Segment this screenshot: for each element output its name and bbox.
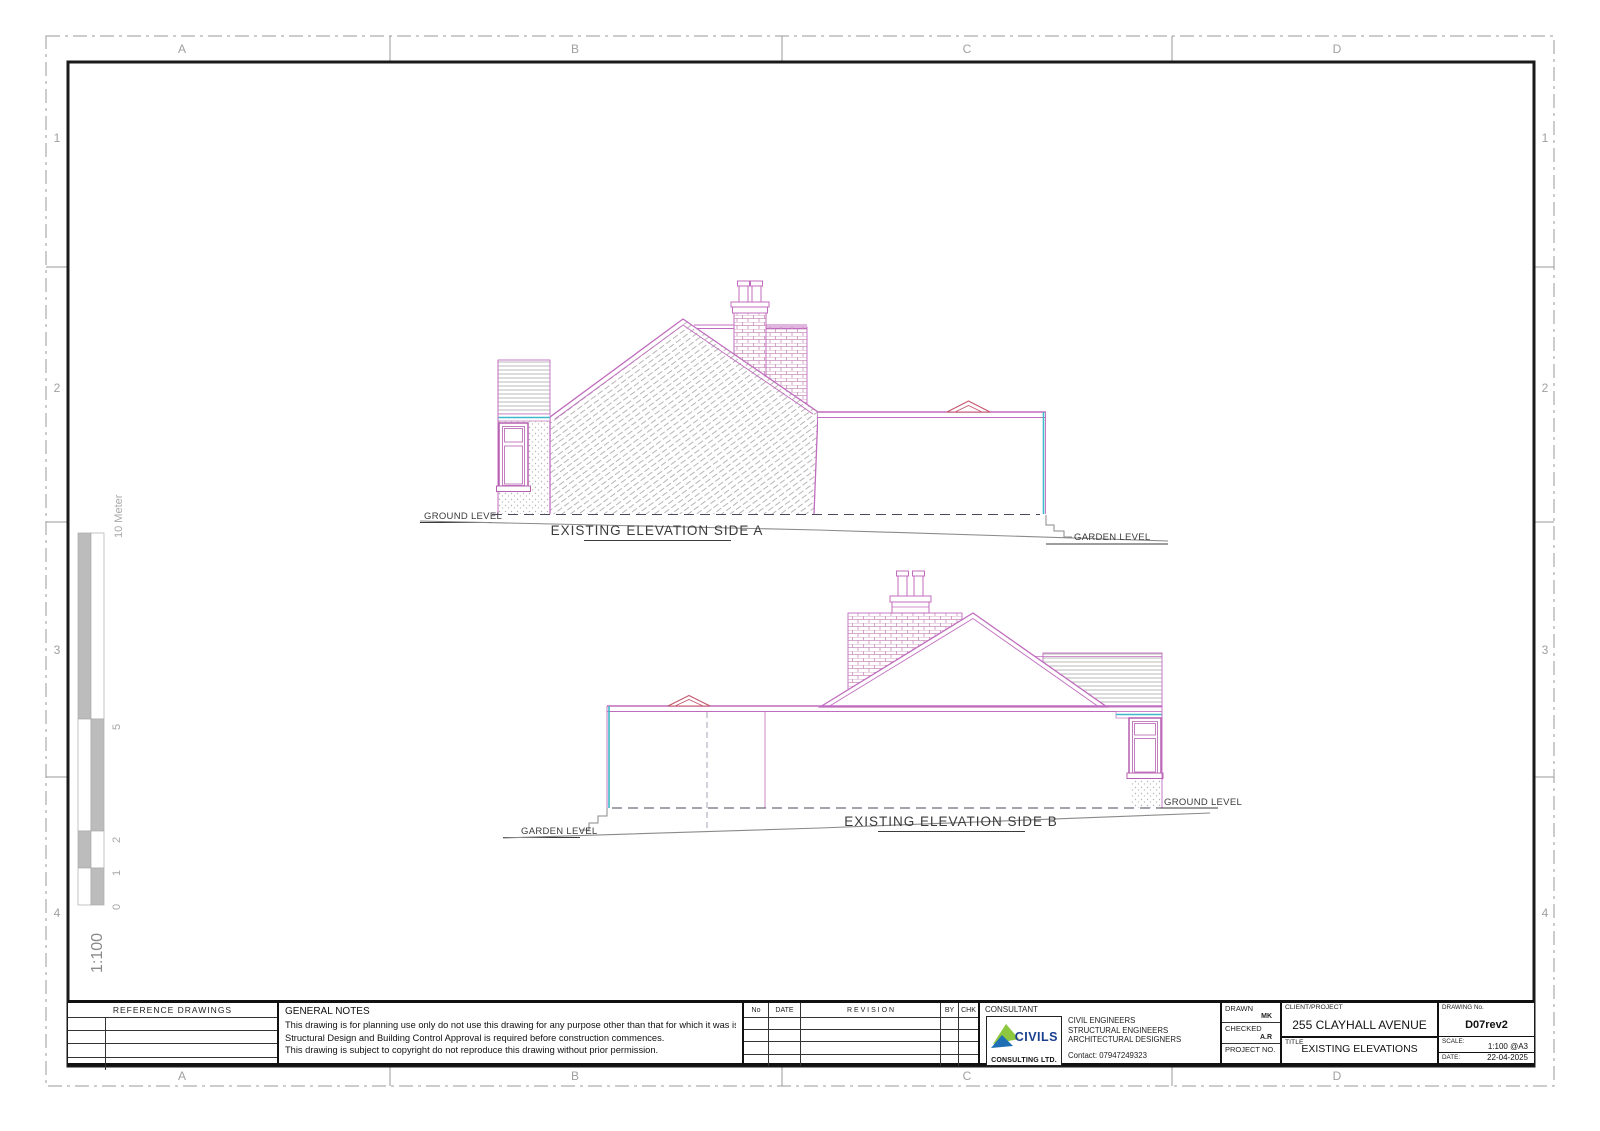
garden-wall-a	[818, 401, 1046, 514]
date-value: 22-04-2025	[1487, 1053, 1528, 1062]
general-notes-section: GENERAL NOTES This drawing is for planni…	[277, 1003, 742, 1063]
revision-col-date: DATE	[768, 1003, 800, 1017]
reference-drawings-row	[68, 1030, 277, 1043]
drawn-label: DRAWN	[1225, 1004, 1253, 1013]
scale-cell: SCALE: 1:100 @A3	[1439, 1036, 1534, 1052]
grid-col-label-top: B	[571, 42, 579, 56]
general-notes-line: This drawing is subject to copyright do …	[285, 1044, 736, 1057]
scale-bar-ratio: 1:100	[89, 933, 106, 973]
date-label: DATE:	[1442, 1054, 1460, 1061]
drawn-value: MK	[1261, 1013, 1272, 1020]
grid-row-label-right: 1	[1542, 131, 1549, 145]
grid-col-label-top: D	[1333, 42, 1342, 56]
scale-label: SCALE:	[1442, 1038, 1464, 1045]
scale-bar-tick: 2	[111, 837, 123, 843]
scale-value: 1:100 @A3	[1488, 1042, 1528, 1051]
grid-col-label-bottom: C	[963, 1069, 972, 1083]
side-wing-a	[497, 360, 551, 514]
drawing-no-label: DRAWING No.	[1442, 1004, 1484, 1011]
general-notes-header: GENERAL NOTES	[285, 1006, 736, 1017]
grid-col-label-bottom: B	[571, 1069, 579, 1083]
drawing-no-cell: DRAWING No. D07rev2	[1439, 1003, 1534, 1036]
reference-drawings-header: REFERENCE DRAWINGS	[68, 1003, 277, 1017]
wall-ornament-a	[947, 401, 990, 412]
scale-bar-tick: 1	[111, 870, 123, 876]
general-notes-line: Structural Design and Building Control A…	[285, 1032, 736, 1045]
grid-row-label-left: 4	[54, 906, 61, 920]
grid-row-label-right: 4	[1542, 906, 1549, 920]
drawing-no-value: D07rev2	[1439, 1019, 1534, 1031]
reference-drawings-row	[68, 1057, 277, 1070]
consultant-service: STRUCTURAL ENGINEERS	[1068, 1026, 1181, 1036]
inner-frame	[68, 62, 1534, 1066]
client-project-cell: CLIENT/PROJECT 255 CLAYHALL AVENUE	[1282, 1003, 1437, 1036]
scale-bar: 10 Meter 5 2 1 0 1:100	[78, 494, 125, 973]
consultant-contact: Contact: 07947249323	[1068, 1051, 1147, 1060]
scale-bar-tick: 5	[111, 724, 123, 730]
wall-ornament-b	[668, 696, 710, 707]
caption-side-b: EXISTING ELEVATION SIDE B	[844, 814, 1058, 829]
grid-row-label-left: 3	[54, 643, 61, 657]
consultant-services: CIVIL ENGINEERS STRUCTURAL ENGINEERS ARC…	[1068, 1016, 1181, 1045]
consultant-service: CIVIL ENGINEERS	[1068, 1016, 1181, 1026]
sheet-border: A B C D A B C D 1 2 3 4 1 2 3 4	[46, 36, 1554, 1086]
render-b	[1130, 779, 1161, 808]
elevation-side-b: GARDEN LEVEL GROUND LEVEL EXISTING ELEVA…	[503, 571, 1242, 838]
checked-row: CHECKED A.R	[1222, 1022, 1280, 1042]
consultant-service: ARCHITECTURAL DESIGNERS	[1068, 1035, 1181, 1045]
grid-col-label-bottom: A	[178, 1069, 186, 1083]
grid-row-label-left: 1	[54, 131, 61, 145]
client-project-label: CLIENT/PROJECT	[1285, 1004, 1343, 1011]
revision-table: No DATE R E V I S I O N BY CHK	[742, 1003, 978, 1063]
ground-level-label-a: GROUND LEVEL	[424, 511, 502, 522]
revision-col-chk: CHK	[958, 1003, 978, 1017]
title-cell: TITLE EXISTING ELEVATIONS	[1282, 1036, 1437, 1063]
elevation-side-a: GROUND LEVEL GARDEN LEVEL EXISTING ELEVA…	[420, 281, 1168, 544]
consultant-logo-subtext: CONSULTING LTD.	[987, 1057, 1061, 1064]
title-value: EXISTING ELEVATIONS	[1282, 1043, 1437, 1055]
grid-col-label-top: C	[963, 42, 972, 56]
drawing-info-section: DRAWING No. D07rev2 SCALE: 1:100 @A3 DAT…	[1437, 1003, 1534, 1063]
client-project-value: 255 CLAYHALL AVENUE	[1282, 1018, 1437, 1032]
consultant-section: CONSULTANT CIVILS CONSULTING LTD. CIVIL …	[978, 1003, 1220, 1063]
drawn-checked-section: DRAWN MK CHECKED A.R PROJECT NO.	[1220, 1003, 1280, 1063]
grid-col-label-bottom: D	[1333, 1069, 1342, 1083]
siding-a	[498, 360, 550, 414]
general-notes-line: This drawing is for planning use only do…	[285, 1019, 736, 1032]
garden-level-label-a: GARDEN LEVEL	[1074, 532, 1150, 543]
consultant-logo-text: CIVILS	[1015, 1030, 1058, 1044]
grid-row-label-left: 2	[54, 381, 61, 395]
revision-col-revision: R E V I S I O N	[800, 1003, 940, 1017]
project-no-label: PROJECT NO.	[1225, 1045, 1275, 1054]
checked-value: A.R	[1260, 1034, 1272, 1041]
title-block: REFERENCE DRAWINGS GENERAL NOTES This dr…	[68, 1000, 1534, 1066]
outer-border	[46, 36, 1554, 1086]
grid-col-label-top: A	[178, 42, 186, 56]
checked-label: CHECKED	[1225, 1024, 1262, 1033]
consultant-logo: CIVILS CONSULTING LTD.	[986, 1016, 1062, 1066]
ground-level-label-b: GROUND LEVEL	[1164, 797, 1242, 808]
levels-a: GROUND LEVEL GARDEN LEVEL	[420, 511, 1168, 544]
caption-side-a: EXISTING ELEVATION SIDE A	[551, 523, 764, 538]
grid-ticks	[46, 36, 1554, 1086]
drawn-row: DRAWN MK	[1222, 1003, 1280, 1022]
reference-drawings-row	[68, 1043, 277, 1056]
client-title-section: CLIENT/PROJECT 255 CLAYHALL AVENUE TITLE…	[1280, 1003, 1437, 1063]
front-wall-b	[607, 706, 1162, 808]
chimney-b	[890, 571, 931, 613]
grid-row-label-right: 2	[1542, 381, 1549, 395]
scale-bar-tick: 0	[111, 904, 123, 910]
reference-drawings-row	[68, 1017, 277, 1030]
revision-col-by: BY	[940, 1003, 958, 1017]
garden-steps-a	[1046, 515, 1072, 537]
project-no-row: PROJECT NO.	[1222, 1043, 1280, 1063]
date-cell: DATE: 22-04-2025	[1439, 1052, 1534, 1063]
reference-drawings-section: REFERENCE DRAWINGS	[68, 1003, 277, 1063]
window-a	[497, 423, 531, 492]
consultant-header: CONSULTANT	[985, 1005, 1038, 1014]
scale-bar-unit-label: 10 Meter	[113, 494, 125, 538]
revision-col-no: No	[744, 1003, 768, 1017]
drawing-sheet: A B C D A B C D 1 2 3 4 1 2 3 4 10 Meter…	[0, 0, 1600, 1131]
grid-row-label-right: 3	[1542, 643, 1549, 657]
